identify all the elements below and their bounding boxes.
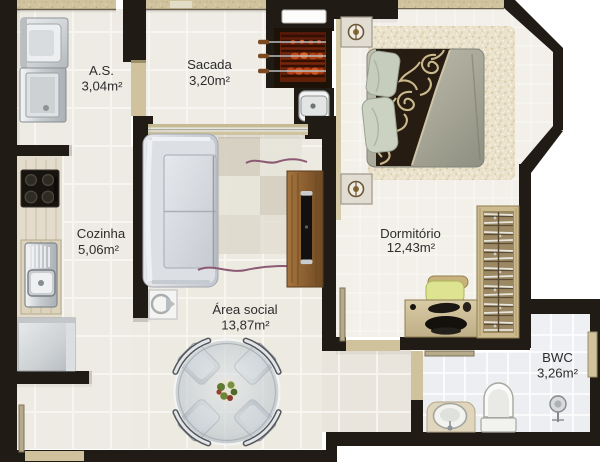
svg-text:BWC: BWC — [542, 350, 573, 365]
svg-text:Cozinha: Cozinha — [77, 226, 126, 241]
svg-text:12,43m²: 12,43m² — [387, 240, 436, 255]
svg-text:A.S.: A.S. — [89, 63, 114, 78]
svg-text:3,20m²: 3,20m² — [189, 73, 231, 88]
svg-text:Sacada: Sacada — [187, 57, 232, 72]
svg-text:Dormitório: Dormitório — [380, 226, 441, 241]
svg-text:13,87m²: 13,87m² — [221, 318, 270, 333]
svg-text:3,04m²: 3,04m² — [81, 79, 123, 94]
svg-text:3,26m²: 3,26m² — [537, 366, 579, 381]
svg-text:Área social: Área social — [212, 302, 277, 317]
svg-text:5,06m²: 5,06m² — [78, 242, 120, 257]
